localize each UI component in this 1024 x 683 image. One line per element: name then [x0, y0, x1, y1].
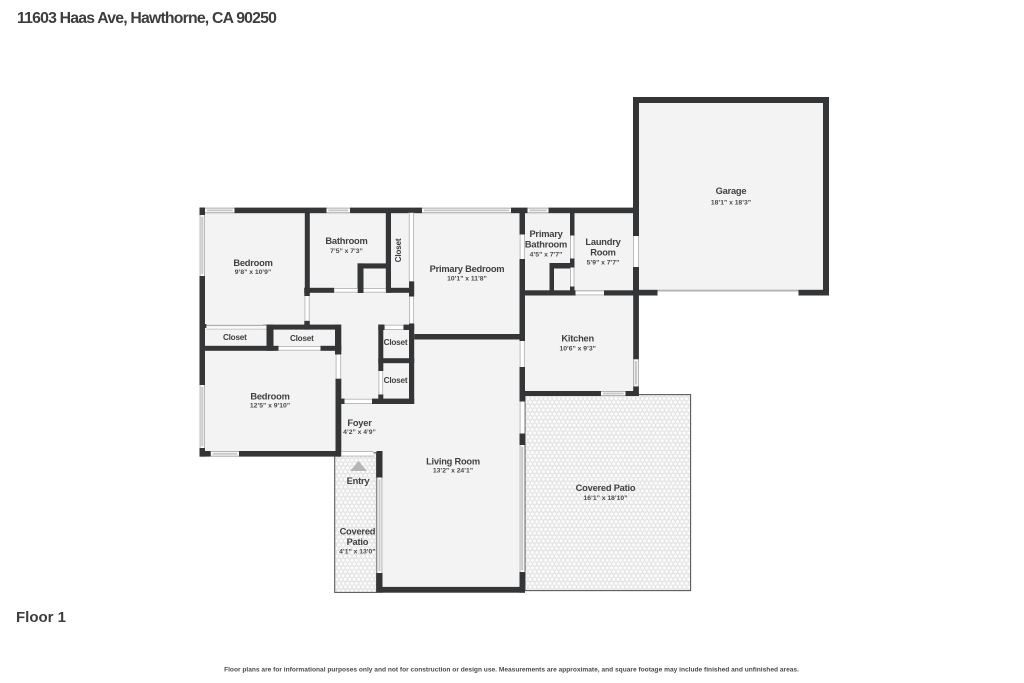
svg-text:Entry: Entry	[347, 476, 371, 486]
svg-text:Primary: Primary	[529, 229, 563, 239]
svg-text:Bedroom: Bedroom	[233, 258, 272, 268]
svg-text:Bedroom: Bedroom	[250, 392, 289, 402]
svg-text:Kitchen: Kitchen	[561, 334, 594, 344]
svg-text:Room: Room	[590, 248, 615, 258]
svg-text:Closet: Closet	[384, 376, 408, 385]
svg-text:Closet: Closet	[394, 238, 403, 262]
svg-text:Bathroom: Bathroom	[525, 240, 567, 250]
svg-text:13’2” x 24’1”: 13’2” x 24’1”	[433, 468, 473, 475]
svg-text:Patio: Patio	[347, 537, 369, 547]
svg-text:4’1” x 13’0”: 4’1” x 13’0”	[339, 549, 375, 556]
svg-text:12’5” x 9’10”: 12’5” x 9’10”	[250, 403, 290, 410]
svg-text:5’9” x 7’7”: 5’9” x 7’7”	[587, 260, 620, 267]
svg-text:4’5” x 7’7”: 4’5” x 7’7”	[530, 252, 563, 259]
svg-text:Closet: Closet	[223, 333, 247, 342]
svg-text:Living Room: Living Room	[426, 457, 480, 467]
svg-text:Laundry: Laundry	[585, 237, 621, 247]
svg-text:7’5” x 7’3”: 7’5” x 7’3”	[330, 248, 363, 255]
svg-text:Primary Bedroom: Primary Bedroom	[430, 264, 505, 274]
svg-text:Foyer: Foyer	[347, 418, 372, 428]
svg-text:18’1” x 18’3”: 18’1” x 18’3”	[711, 200, 751, 207]
svg-text:Closet: Closet	[290, 334, 314, 343]
svg-text:Covered Patio: Covered Patio	[576, 483, 636, 493]
svg-text:Bathroom: Bathroom	[325, 236, 367, 246]
svg-text:Garage: Garage	[716, 186, 747, 196]
svg-text:Covered: Covered	[340, 527, 376, 537]
svg-text:16’1” x 18’10”: 16’1” x 18’10”	[584, 495, 628, 502]
svg-text:10’1” x 11’8”: 10’1” x 11’8”	[447, 276, 487, 283]
svg-text:Floor plans are for informatio: Floor plans are for informational purpos…	[224, 667, 799, 674]
svg-text:9’8” x 10’9”: 9’8” x 10’9”	[235, 269, 271, 276]
svg-text:4’2” x 4’9”: 4’2” x 4’9”	[343, 429, 376, 436]
svg-text:11603 Haas Ave, Hawthorne, CA: 11603 Haas Ave, Hawthorne, CA 90250	[17, 10, 277, 27]
svg-text:Closet: Closet	[384, 338, 408, 347]
svg-text:Floor 1: Floor 1	[16, 609, 66, 626]
svg-text:10’6” x 9’3”: 10’6” x 9’3”	[559, 346, 595, 353]
